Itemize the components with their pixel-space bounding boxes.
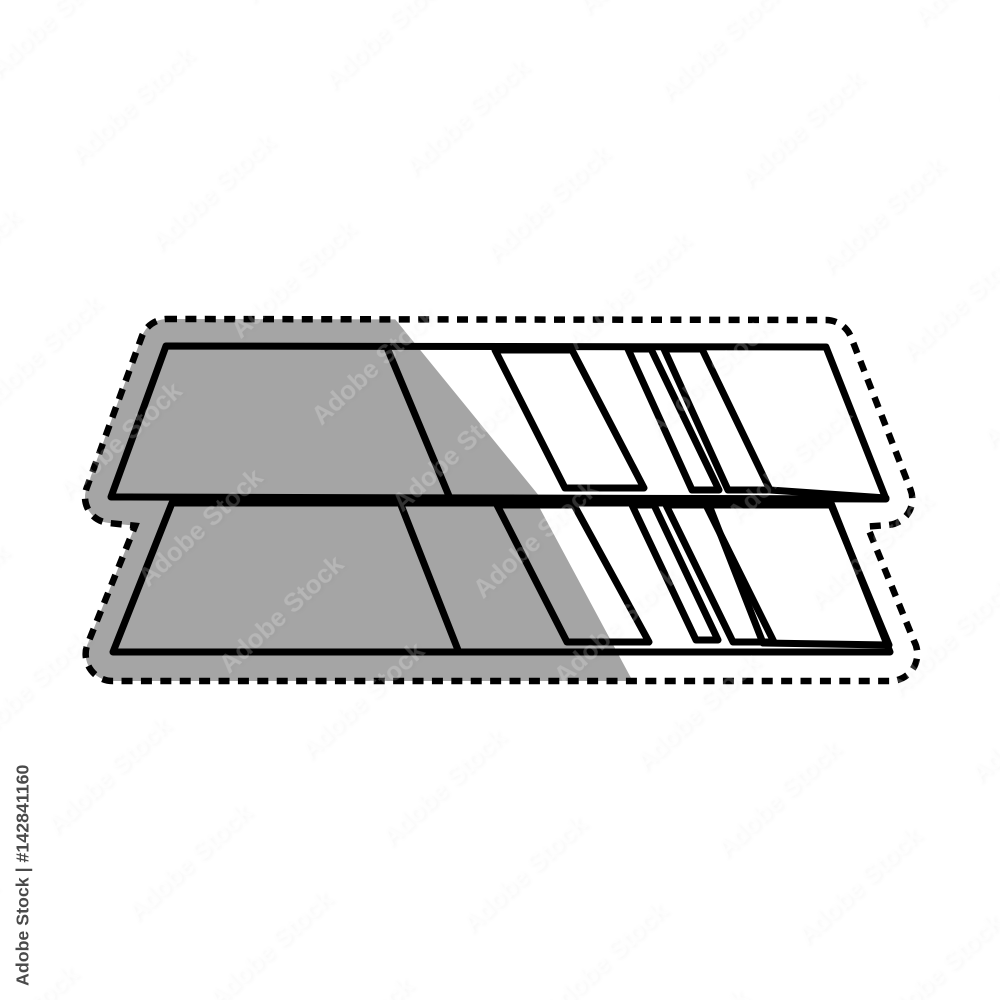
- svg-text:Adobe Stock | #142841160: Adobe Stock | #142841160: [13, 764, 33, 986]
